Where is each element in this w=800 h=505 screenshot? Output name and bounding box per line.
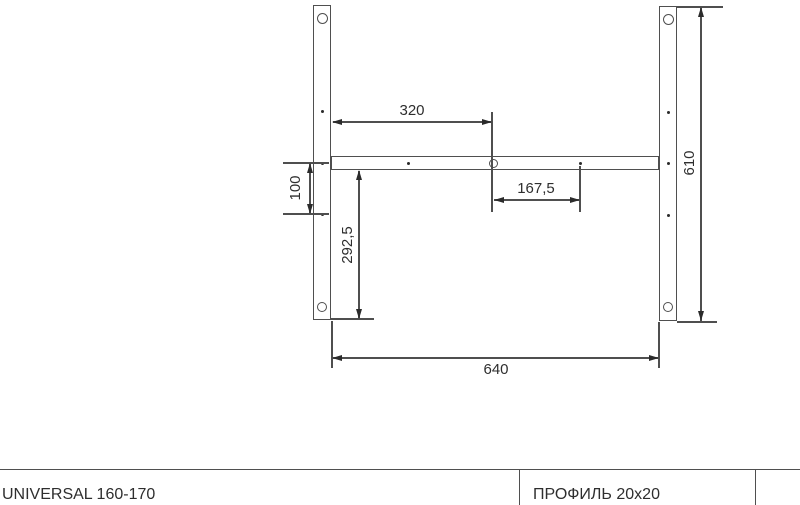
dim-610-line (700, 8, 701, 321)
dim-167-arrow-left (494, 197, 504, 203)
dim-640-arrow-left (332, 355, 342, 361)
dim-167-arrow-right (570, 197, 580, 203)
dim-640-arrow-right (649, 355, 659, 361)
crossbar-pilot-hole (407, 162, 410, 165)
dim-640-extension-right (658, 322, 659, 368)
dim-320-extension-line (491, 112, 492, 212)
left-profile-top-hole (317, 13, 328, 24)
dim-320-line (333, 121, 491, 122)
dim-100-label: 100 (288, 156, 304, 220)
dim-292-extension-bottom (331, 318, 374, 319)
dim-640-label: 640 (464, 362, 528, 378)
dim-320-label: 320 (380, 103, 444, 119)
dim-640-line (333, 357, 659, 358)
dim-610-arrow-down (698, 311, 704, 321)
left-profile-pilot-hole (321, 110, 324, 113)
right-profile-top-hole (663, 14, 674, 25)
crossbar-pilot-hole (579, 162, 582, 165)
right-profile-pilot-hole (667, 111, 670, 114)
dim-100-arrow-up (307, 163, 313, 173)
dim-292-line (358, 171, 359, 319)
dim-167-line (494, 199, 580, 200)
title-block-divider-right (755, 469, 756, 505)
crossbar-center-hole (489, 159, 498, 168)
right-profile-pilot-hole (667, 162, 670, 165)
title-block-divider-left (519, 469, 520, 505)
left-profile-bottom-hole (317, 302, 327, 312)
right-profile-bottom-hole (663, 302, 673, 312)
dim-320-arrow-right (482, 119, 492, 125)
dim-292-arrow-up (356, 170, 362, 180)
dim-100-arrow-down (307, 204, 313, 214)
dim-292-label: 292,5 (340, 213, 356, 277)
dim-610-label: 610 (682, 131, 698, 195)
right-profile-pilot-hole (667, 214, 670, 217)
title-block-top-border (0, 469, 800, 470)
dim-320-arrow-left (332, 119, 342, 125)
model-name-label: UNIVERSAL 160-170 (2, 486, 155, 503)
dim-292-arrow-down (356, 309, 362, 319)
dim-640-extension-left (331, 321, 332, 368)
profile-size-label: ПРОФИЛЬ 20x20 (533, 486, 660, 503)
dim-167-label: 167,5 (504, 181, 568, 197)
technical-drawing: 320 167,5 100 292,5 640 610 UNIVERSAL 16… (0, 0, 800, 505)
dim-610-extension-bottom (677, 321, 717, 322)
dim-167-extension-line (579, 166, 580, 212)
dim-610-arrow-up (698, 7, 704, 17)
